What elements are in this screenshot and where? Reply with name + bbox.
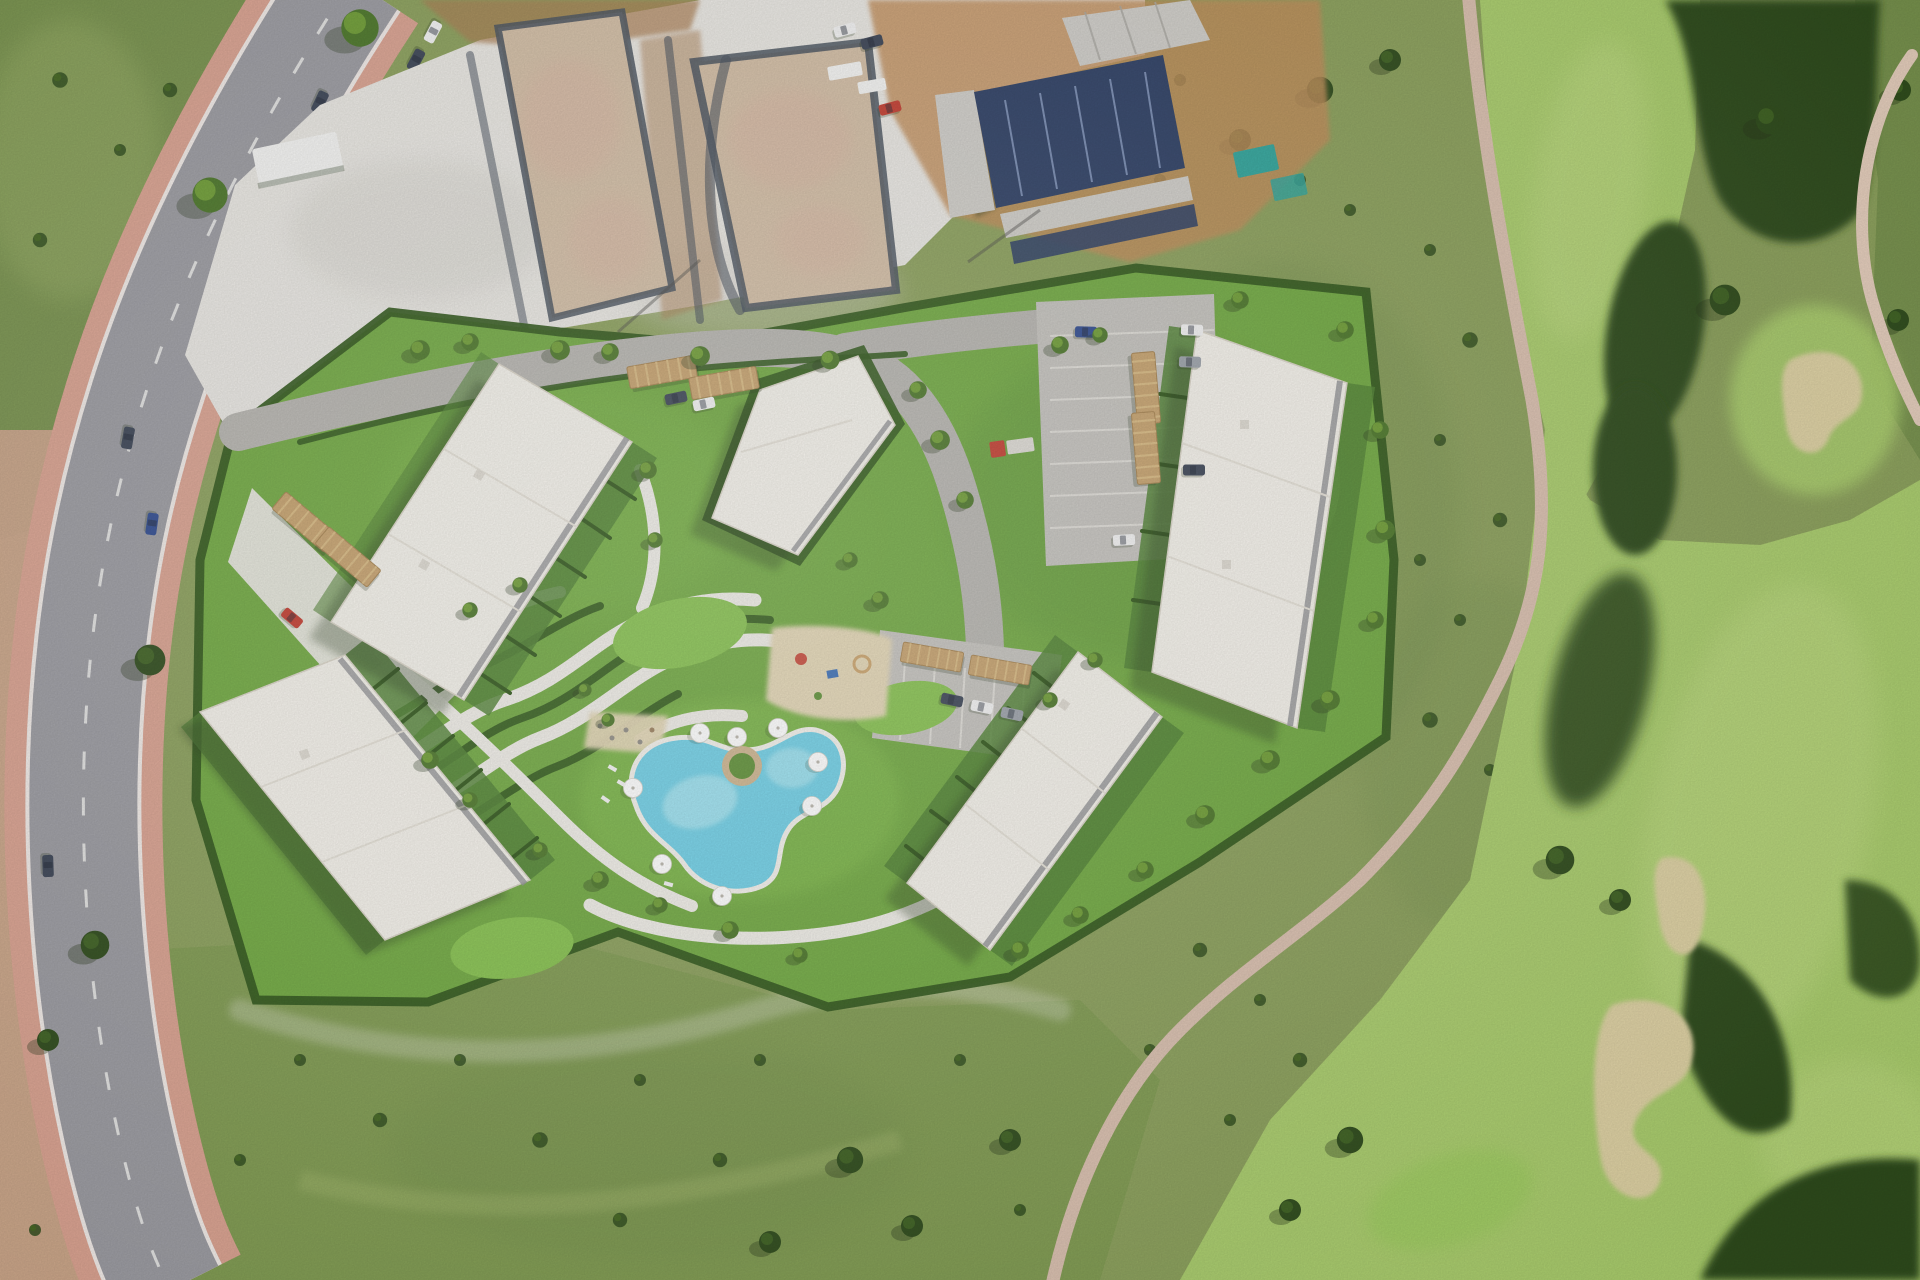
- grain-overlay: [0, 0, 1920, 1280]
- aerial-photo: [0, 0, 1920, 1280]
- aerial-photo-canvas: [0, 0, 1920, 1280]
